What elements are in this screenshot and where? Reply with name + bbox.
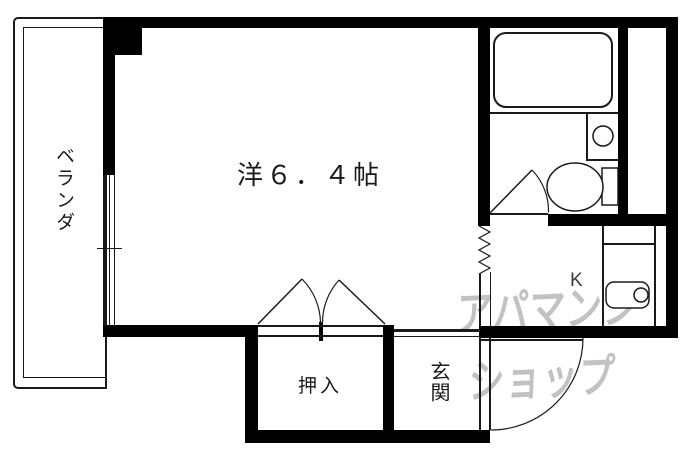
bathroom-door-leaf xyxy=(490,170,532,213)
floorplan-canvas: アパマンシ ショップ xyxy=(0,0,690,460)
kitchen-label: K xyxy=(570,270,583,292)
closet-door-right-arc xyxy=(322,280,339,323)
accordion-door-icon xyxy=(479,226,490,274)
entrance-label: 玄関 xyxy=(424,361,453,403)
bathroom-door-arc xyxy=(532,170,549,213)
toilet-bowl-icon xyxy=(547,163,603,211)
bathroom-basin-icon xyxy=(593,126,613,146)
bathtub-icon xyxy=(494,33,612,107)
closet-door-right-leaf xyxy=(339,280,385,324)
kitchen-faucet-icon xyxy=(634,288,648,302)
main-room-label: 洋６．４帖 xyxy=(237,155,382,192)
veranda-label: ベランダ xyxy=(50,146,77,234)
closet-door-left-arc xyxy=(302,279,321,323)
closet-door-left-leaf xyxy=(258,279,302,324)
toilet-tank-icon xyxy=(602,168,618,205)
entrance-door-arc xyxy=(491,338,584,430)
closet-label: 押入 xyxy=(298,371,342,398)
fixtures-layer xyxy=(0,0,690,460)
